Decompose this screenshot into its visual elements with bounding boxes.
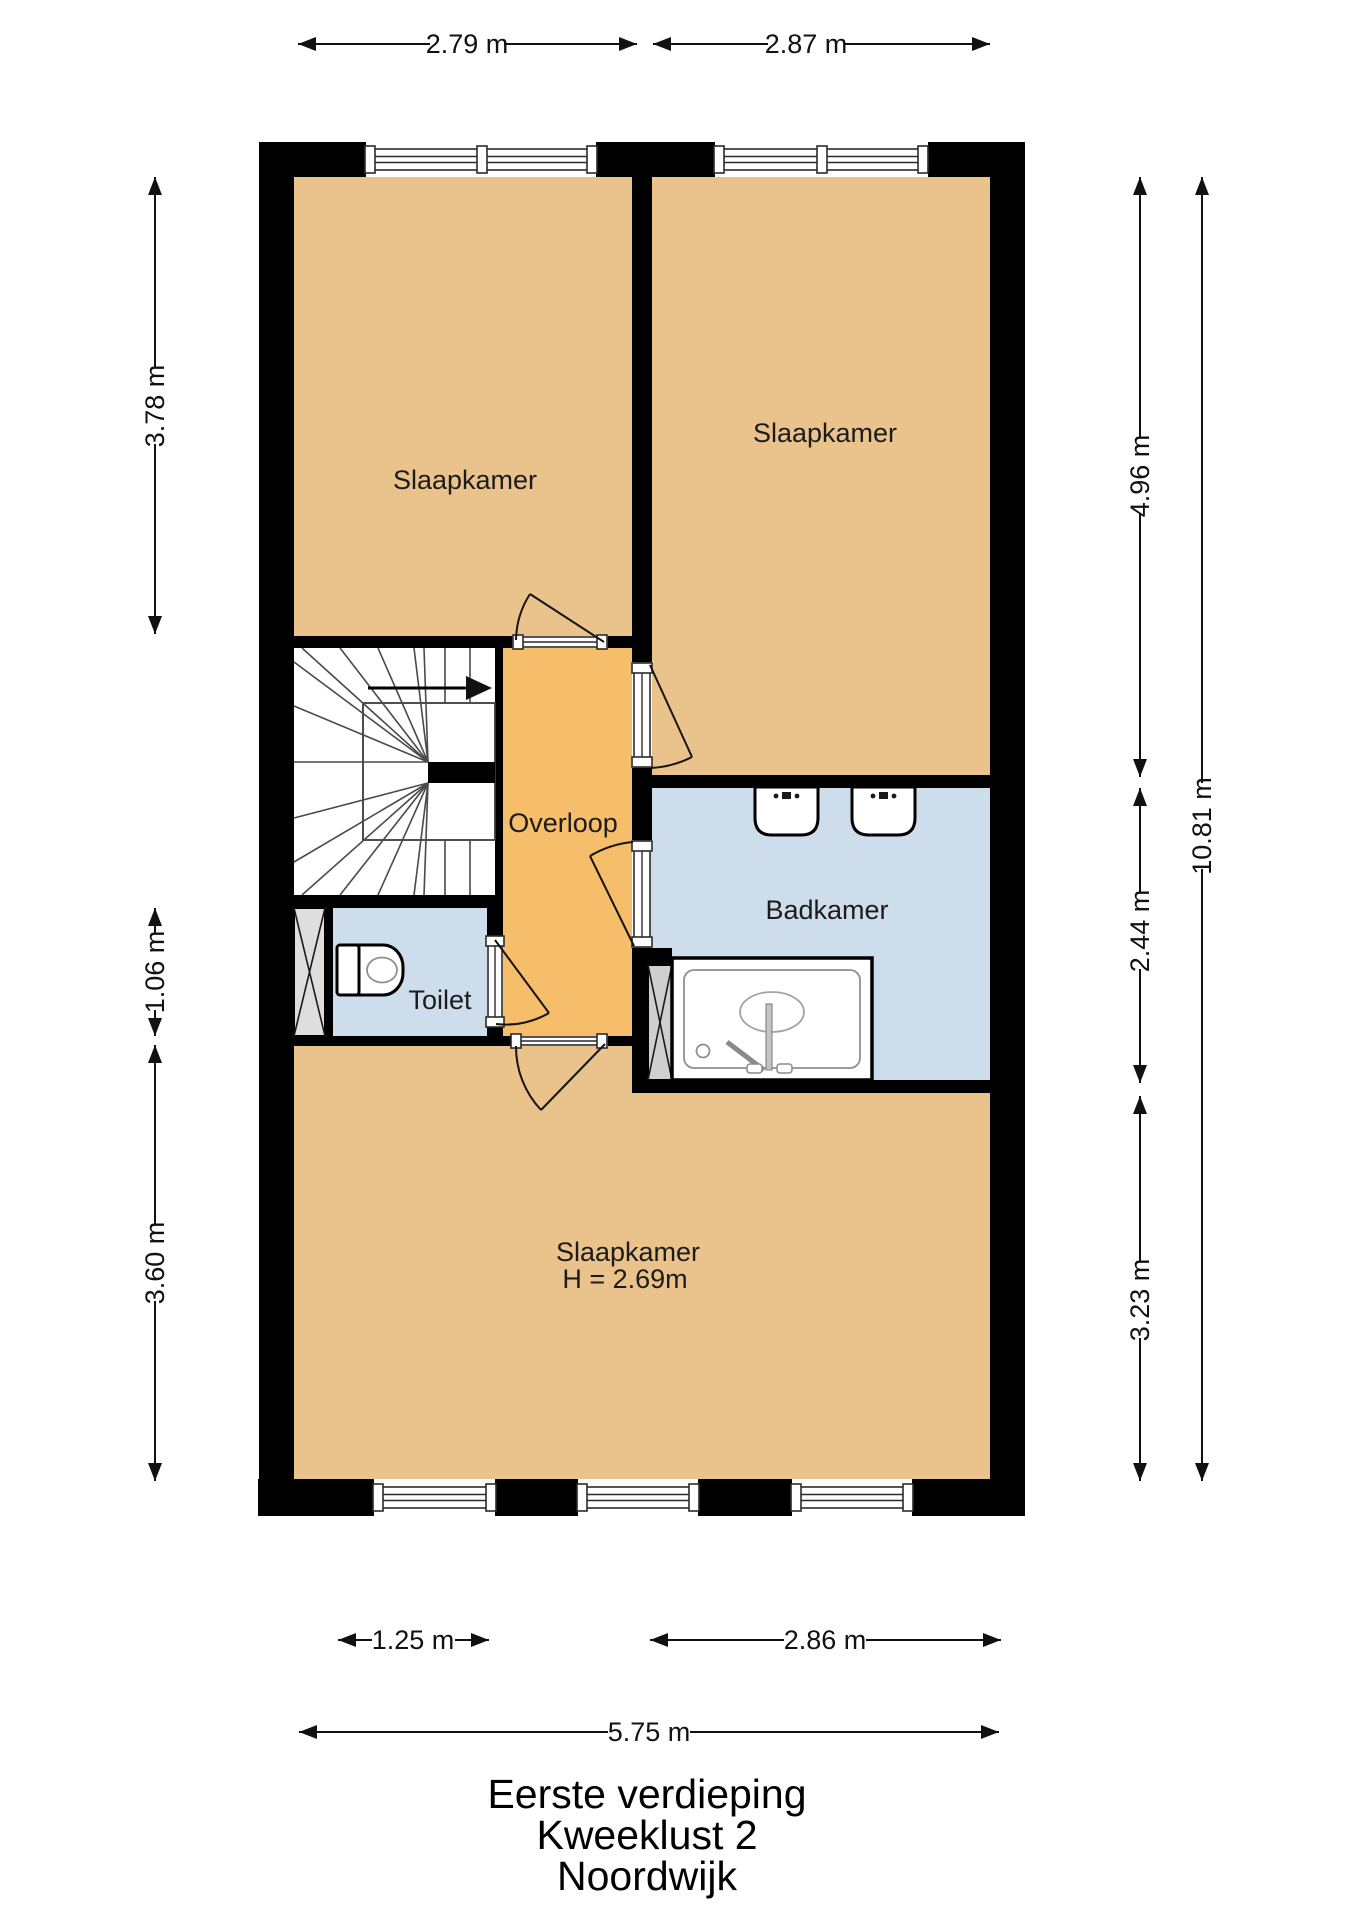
wall-toilet-right-upper: [487, 908, 503, 938]
dim-label-right-lower: 3.23 m: [1125, 1259, 1155, 1342]
dim-left-lower: 3.60 m: [140, 1045, 170, 1481]
label-bedroom-bottom: Slaapkamer: [556, 1237, 700, 1267]
wall-bottom-pier-left: [258, 1479, 374, 1516]
dim-bottom-total: 5.75 m: [299, 1717, 999, 1747]
window-bottom-right: [791, 1484, 913, 1511]
stairs-newel-wall: [428, 762, 495, 783]
dim-label-bottom-left: 1.25 m: [372, 1625, 455, 1655]
wall-bathroom-bottom: [632, 1080, 990, 1093]
wall-outer-right: [990, 142, 1025, 1516]
wall-toilet-top: [294, 895, 503, 908]
wall-bedroomTL-bottom-left: [294, 636, 512, 648]
dim-label-bottom-total: 5.75 m: [608, 1717, 691, 1747]
shower-fixture: [672, 958, 872, 1080]
wall-shaft-divider: [325, 908, 333, 1036]
label-bathroom: Badkamer: [765, 895, 888, 925]
dim-right-lower: 3.23 m: [1125, 1096, 1155, 1481]
dim-label-top-left: 2.79 m: [426, 29, 509, 59]
wall-stairwell-divider: [495, 648, 503, 895]
dim-right-upper: 4.96 m: [1125, 177, 1155, 777]
washbasin-1-tap-icon: [782, 792, 791, 799]
wall-top-pier-left: [259, 142, 366, 177]
toilet-fixture: [337, 945, 403, 995]
wall-bathroom-alcove-left: [632, 965, 648, 1093]
floorplan-canvas: Slaapkamer Slaapkamer Overloop Toilet Ba…: [0, 0, 1358, 1920]
washbasin-1-fixture: [755, 787, 818, 835]
washbasin-2-tap-icon: [879, 792, 888, 799]
wall-top-pier-right: [928, 142, 1025, 177]
window-bottom-left: [373, 1484, 496, 1511]
dim-bottom-left: 1.25 m: [338, 1625, 489, 1655]
wall-spine-upper: [632, 177, 652, 662]
wall-bedroomTL-bottom-right: [608, 636, 652, 648]
dim-label-right-middle: 2.44 m: [1125, 890, 1155, 973]
wall-bottom-pier-2: [495, 1479, 578, 1516]
label-landing: Overloop: [508, 808, 618, 838]
dim-label-bottom-right: 2.86 m: [784, 1625, 867, 1655]
dim-top-left: 2.79 m: [298, 29, 637, 59]
shaft-next-to-toilet: [294, 908, 325, 1036]
wall-outer-left: [259, 142, 294, 1516]
title-address: Kweeklust 2: [536, 1812, 757, 1858]
wall-spine-mid: [632, 768, 652, 840]
shaft-next-to-shower: [648, 965, 672, 1080]
dim-label-left-lower: 3.60 m: [140, 1222, 170, 1305]
dim-left-upper: 3.78 m: [140, 177, 170, 634]
label-toilet: Toilet: [408, 985, 472, 1015]
dim-top-right: 2.87 m: [653, 29, 990, 59]
dim-bottom-right: 2.86 m: [650, 1625, 1001, 1655]
title-block: Eerste verdieping Kweeklust 2 Noordwijk: [487, 1771, 806, 1899]
window-top-left: [365, 146, 597, 173]
room-bedroom-top-right: [652, 177, 990, 775]
dim-label-left-middle: 1.06 m: [140, 931, 170, 1014]
wall-landing-bottom-left: [294, 1036, 512, 1046]
dim-label-left-upper: 3.78 m: [140, 365, 170, 448]
dim-right-middle: 2.44 m: [1125, 788, 1155, 1083]
wall-bedroomTR-bottom: [652, 775, 990, 788]
dim-right-total: 10.81 m: [1187, 177, 1217, 1481]
label-bedroom-top-left: Slaapkamer: [393, 465, 537, 495]
floorplan-page: Slaapkamer Slaapkamer Overloop Toilet Ba…: [0, 0, 1358, 1920]
dim-left-middle: 1.06 m: [140, 908, 170, 1036]
wall-landing-bottom-right: [608, 1036, 632, 1046]
label-bedroom-top-right: Slaapkamer: [753, 418, 897, 448]
dim-label-right-total: 10.81 m: [1187, 777, 1217, 875]
wall-bottom-pier-right: [912, 1479, 1025, 1516]
window-top-right: [714, 146, 928, 173]
dim-label-right-upper: 4.96 m: [1125, 435, 1155, 518]
label-bedroom-bottom-height: H = 2.69m: [562, 1264, 687, 1294]
title-city: Noordwijk: [557, 1853, 737, 1899]
washbasin-2-fixture: [852, 787, 915, 835]
title-floor: Eerste verdieping: [487, 1771, 806, 1817]
wall-bottom-pier-3: [698, 1479, 792, 1516]
room-bedroom-top-left: [294, 177, 632, 636]
window-bottom-middle: [577, 1484, 699, 1511]
dim-label-top-right: 2.87 m: [765, 29, 848, 59]
wall-top-pier-middle: [596, 142, 715, 177]
wall-bathroom-alcove-top: [632, 948, 672, 965]
